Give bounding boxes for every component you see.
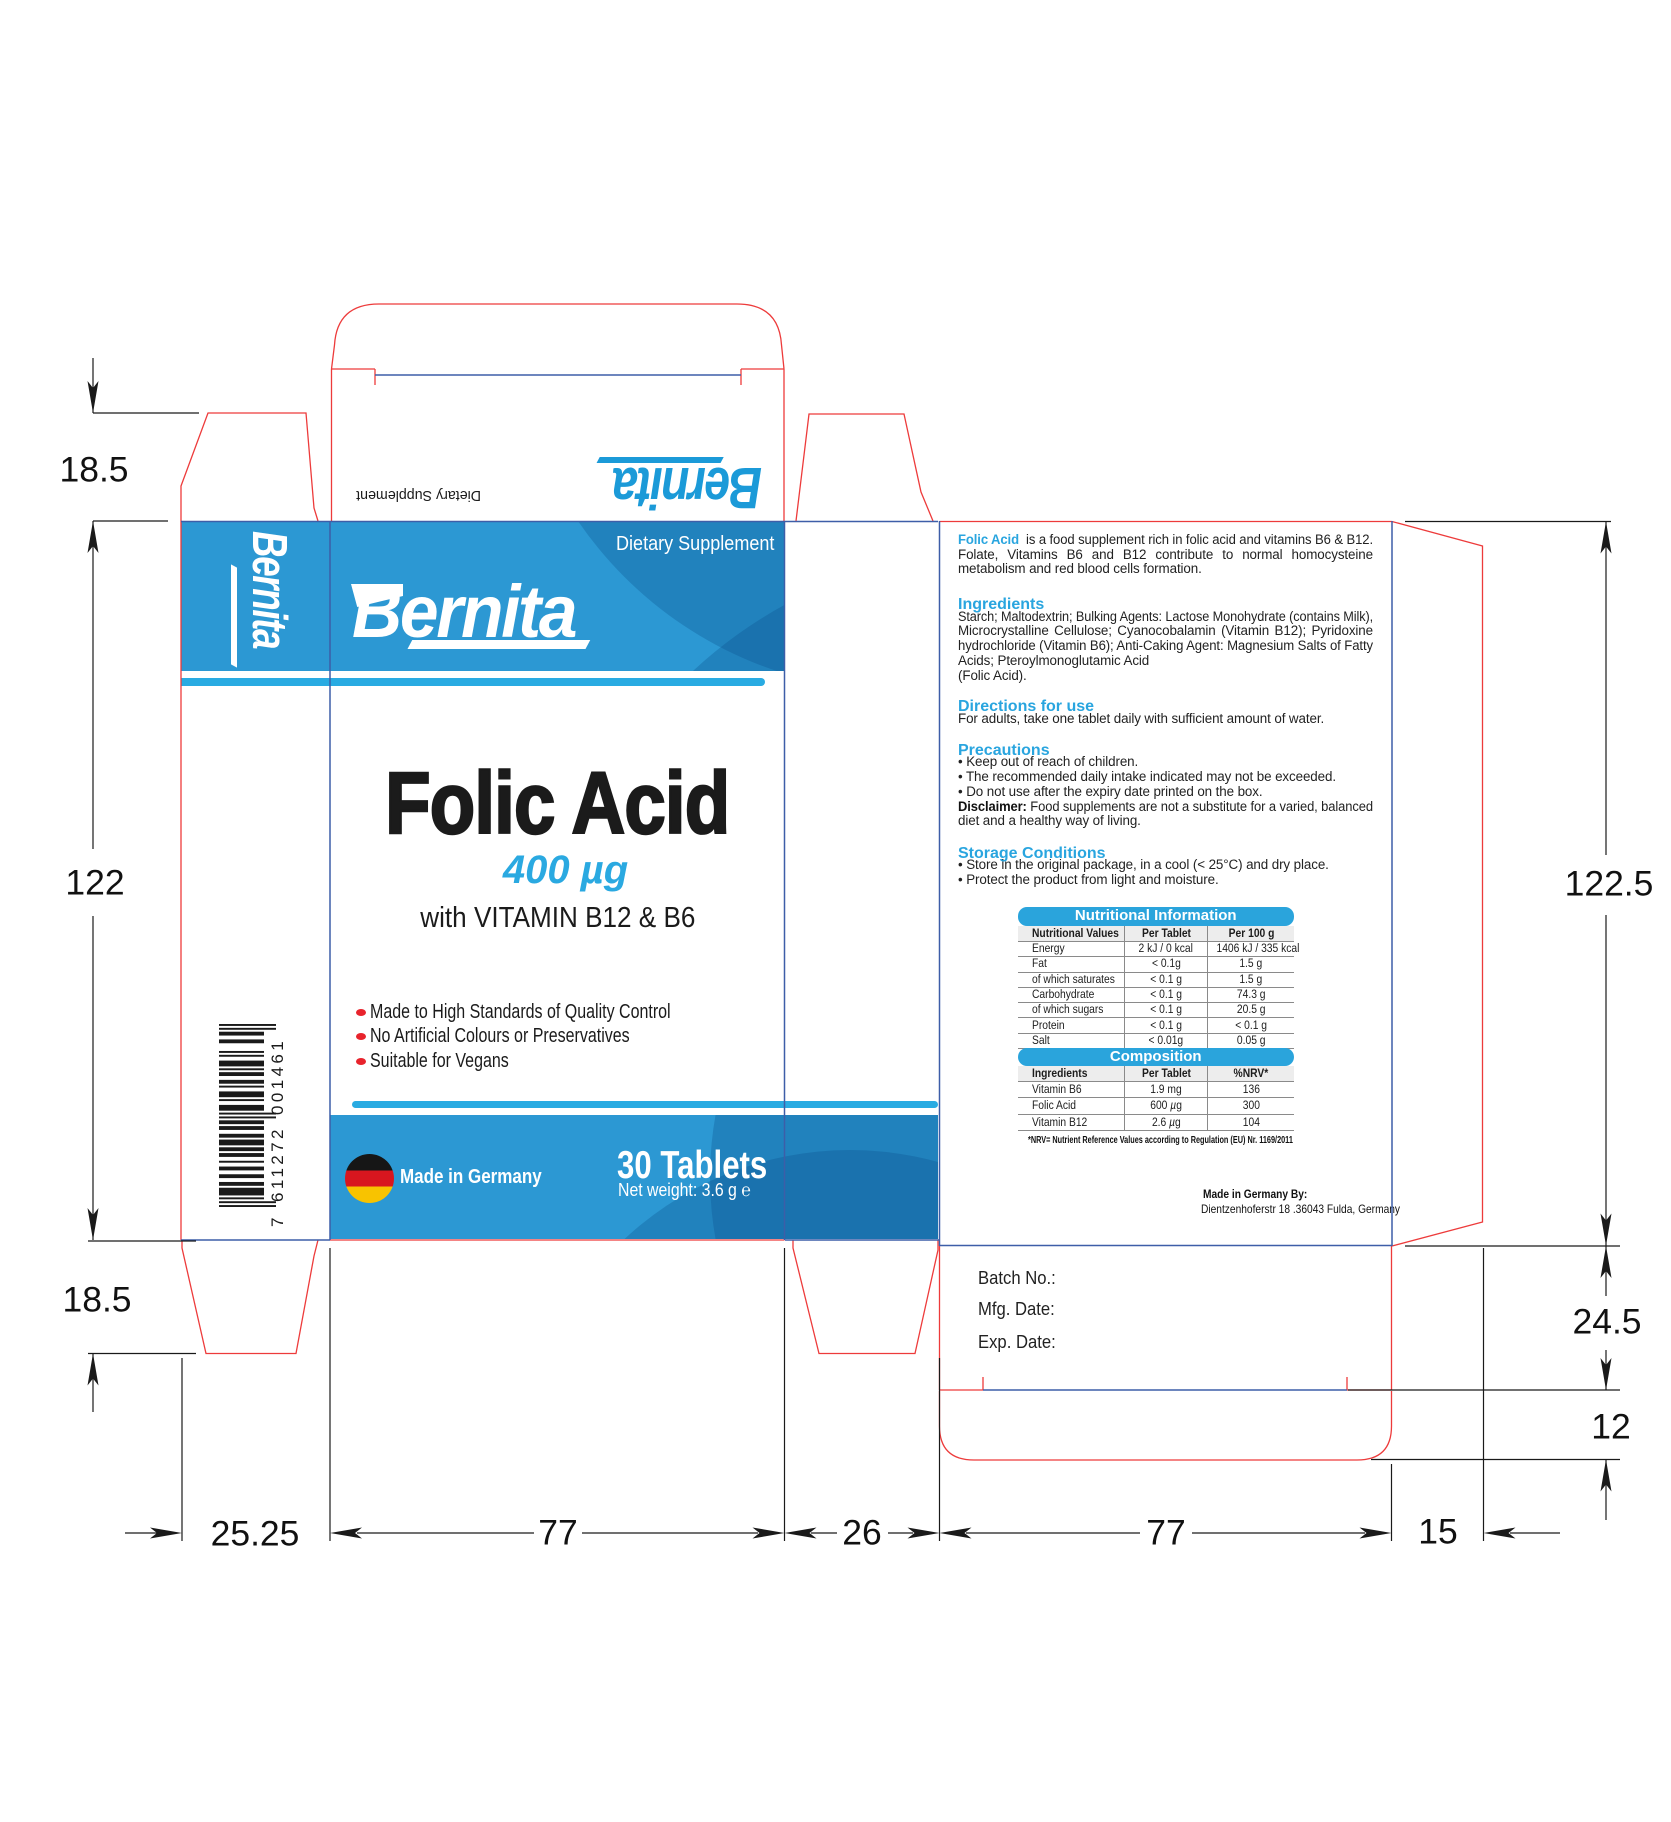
- svg-text:001461: 001461: [268, 1038, 287, 1115]
- svg-text:611272: 611272: [268, 1126, 287, 1202]
- svg-text:7: 7: [268, 1218, 287, 1227]
